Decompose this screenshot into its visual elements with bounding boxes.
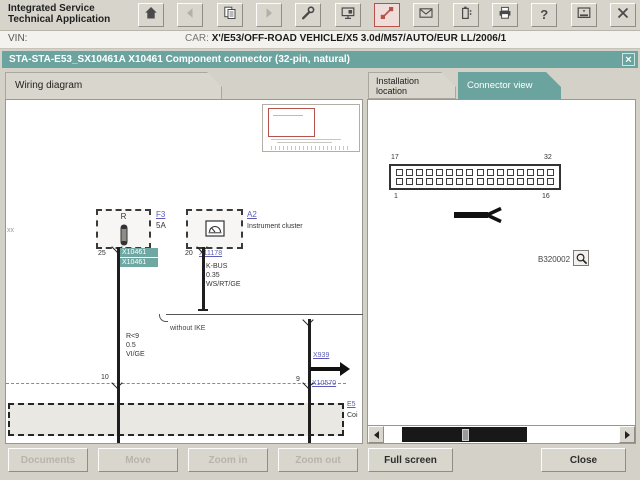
connector-pin xyxy=(406,178,413,185)
connector-pin xyxy=(436,178,443,185)
forward-arrow-icon xyxy=(261,5,277,26)
tab-connector-view[interactable]: Connector view xyxy=(458,72,561,100)
tab-installation-line1: Installation xyxy=(376,76,455,86)
full-screen-button[interactable]: Full screen xyxy=(368,448,453,472)
left-wire-gauge: 0.5 xyxy=(126,341,145,350)
pin-label-top-right: 32 xyxy=(544,153,552,162)
connector-pin xyxy=(517,169,524,176)
left-wire-color: VI/GE xyxy=(126,350,145,359)
magnifier-button[interactable] xyxy=(573,250,589,266)
home-icon xyxy=(143,5,159,26)
fuse-pin-number: 25 xyxy=(98,249,106,258)
connector-pin xyxy=(497,178,504,185)
branch-pin: 9 xyxy=(296,375,300,384)
document-icon xyxy=(222,5,238,26)
app-title-line2: Technical Application xyxy=(8,14,110,25)
car-line: CAR: X'/E53/OFF-ROAD VEHICLE/X5 3.0d/M57… xyxy=(185,33,506,44)
connector-pin xyxy=(547,169,554,176)
branch-arrow-link[interactable]: X939 xyxy=(313,351,329,360)
branch-line xyxy=(166,314,363,315)
connector-pin xyxy=(466,169,473,176)
connector-pin xyxy=(396,169,403,176)
tab-installation-line2: location xyxy=(376,86,455,96)
document-title-bar: STA-STA-E53_SX10461A X10461 Component co… xyxy=(2,51,638,68)
fuse-icon xyxy=(119,223,129,247)
close-button[interactable]: Close xyxy=(541,448,626,472)
wire-end-icon xyxy=(454,205,506,225)
continuation-arrow-head xyxy=(340,362,350,376)
connector-pin xyxy=(517,178,524,185)
branch-line-hook xyxy=(159,314,168,322)
question-icon: ? xyxy=(540,6,548,24)
magnifier-icon xyxy=(575,252,588,265)
wiring-diagram-panel: xx R F3 5A 25 X10461 X10461 A2 xyxy=(5,99,363,444)
tab-connector-view-label: Connector view xyxy=(467,80,532,91)
document-button[interactable] xyxy=(217,3,243,27)
wrench-button[interactable] xyxy=(295,3,321,27)
back-arrow-icon xyxy=(182,5,198,26)
left-wire-name: R<9 xyxy=(126,332,145,341)
left-wire-spec: R<9 0.5 VI/GE xyxy=(126,332,145,359)
tab-installation-location[interactable]: Installation location xyxy=(368,72,456,99)
cluster-label: Instrument cluster xyxy=(247,222,303,231)
close-icon xyxy=(615,5,631,26)
right-triangle-icon xyxy=(625,431,630,439)
plug-icon xyxy=(379,5,395,26)
zoom-in-button[interactable]: Zoom in xyxy=(188,448,268,472)
printer-icon xyxy=(497,5,513,26)
monitor-icon xyxy=(340,5,356,26)
battery-button[interactable] xyxy=(453,3,479,27)
connector-pin xyxy=(446,178,453,185)
pin-label-bottom-right: 16 xyxy=(542,192,550,201)
thumbnail-viewport-rect[interactable] xyxy=(268,108,315,137)
connector-pin-grid xyxy=(389,164,561,190)
connector-pin-row xyxy=(391,169,559,176)
envelope-button[interactable] xyxy=(413,3,439,27)
connector-pin xyxy=(446,169,453,176)
junction-chevron xyxy=(302,314,313,325)
wrench-icon xyxy=(300,5,316,26)
connector-view-panel: 17 32 1 16 B320002 xyxy=(367,99,636,444)
thumbnail-ticks xyxy=(271,146,349,150)
scroll-right-button[interactable] xyxy=(619,426,635,443)
screen-icon xyxy=(576,5,592,26)
clipped-edge-label: xx xyxy=(7,226,14,235)
cluster-pin-number: 20 xyxy=(185,249,193,258)
dotted-separator xyxy=(6,383,346,384)
thumbnail-line xyxy=(271,139,341,140)
horizontal-scrollbar xyxy=(368,425,635,443)
connector-pin xyxy=(466,178,473,185)
thumbnail-line xyxy=(273,115,303,116)
connector-pin xyxy=(477,178,484,185)
connector-pin xyxy=(426,169,433,176)
branch-condition-label: without IKE xyxy=(170,324,205,333)
connector-pin xyxy=(396,178,403,185)
connector-tag[interactable]: X10461 xyxy=(120,258,158,267)
junction-chevron xyxy=(111,377,122,388)
tab-wiring-diagram-label: Wiring diagram xyxy=(15,80,82,91)
connector-pin xyxy=(537,178,544,185)
bus-wire-gauge: 0.35 xyxy=(206,271,240,280)
fuse-rating: 5A xyxy=(156,221,166,231)
fuse-terminal-label: R xyxy=(98,212,149,222)
connector-pin xyxy=(426,178,433,185)
scrollbar-thumb[interactable] xyxy=(402,427,527,442)
envelope-icon xyxy=(418,5,434,26)
connector-pin xyxy=(547,178,554,185)
home-button[interactable] xyxy=(138,3,164,27)
connector-pin xyxy=(487,178,494,185)
documents-button[interactable]: Documents xyxy=(8,448,88,472)
connector-pin xyxy=(477,169,484,176)
scrollbar-track[interactable] xyxy=(384,426,619,443)
thumbnail-line xyxy=(277,142,332,143)
scroll-left-button[interactable] xyxy=(368,426,384,443)
toolbar-icon-row: ? xyxy=(138,3,636,27)
battery-icon xyxy=(458,5,474,26)
scrollbar-grip xyxy=(462,429,469,441)
bus-wire-spec: K-BUS 0.35 WS/RT/GE xyxy=(206,262,240,289)
connector-pin xyxy=(537,169,544,176)
fuse-component-box: R xyxy=(96,209,151,249)
tab-wiring-diagram[interactable]: Wiring diagram xyxy=(5,72,222,99)
top-toolbar: Integrated Service Technical Application… xyxy=(0,0,640,31)
bottom-box-link[interactable]: E5 xyxy=(347,400,356,409)
close-icon: × xyxy=(625,54,631,66)
car-label: CAR: xyxy=(185,33,209,44)
cluster-link[interactable]: A2 xyxy=(247,210,257,220)
instrument-cluster-icon xyxy=(205,220,225,238)
left-triangle-icon xyxy=(374,431,379,439)
left-wire xyxy=(117,247,120,443)
connector-pin xyxy=(436,169,443,176)
diagram-overview-thumbnail[interactable] xyxy=(262,104,360,152)
back-arrow-button[interactable] xyxy=(177,3,203,27)
app-title: Integrated Service Technical Application xyxy=(8,3,110,25)
question-button[interactable]: ? xyxy=(531,3,557,27)
fuse-link[interactable]: F3 xyxy=(156,210,165,220)
connector-pin xyxy=(497,169,504,176)
app-title-line1: Integrated Service xyxy=(8,3,110,14)
left-wire-pin: 10 xyxy=(101,373,109,382)
ista-window: Integrated Service Technical Application… xyxy=(0,0,640,480)
vin-label: VIN: xyxy=(8,33,27,44)
printer-button[interactable] xyxy=(492,3,518,27)
connector-pin xyxy=(406,169,413,176)
connector-pin xyxy=(487,169,494,176)
connector-pin xyxy=(527,169,534,176)
pin-label-top-left: 17 xyxy=(391,153,399,162)
document-title: STA-STA-E53_SX10461A X10461 Component co… xyxy=(9,54,350,65)
bus-wire xyxy=(202,247,205,310)
connector-pin xyxy=(507,169,514,176)
pin-label-bottom-left: 1 xyxy=(394,192,398,201)
plug-button[interactable] xyxy=(374,3,400,27)
branch-connector-link[interactable]: X10570 xyxy=(312,379,336,388)
connector-pin xyxy=(416,178,423,185)
figure-id: B320002 xyxy=(538,255,570,265)
bus-wire-color: WS/RT/GE xyxy=(206,280,240,289)
close-button[interactable] xyxy=(610,3,636,27)
connector-pin xyxy=(527,178,534,185)
bus-wire-end-cap xyxy=(198,309,208,311)
cluster-component-box xyxy=(186,209,243,249)
connector-pin-row xyxy=(391,178,559,185)
connector-pin xyxy=(456,178,463,185)
screen-button[interactable] xyxy=(571,3,597,27)
forward-arrow-button[interactable] xyxy=(256,3,282,27)
connector-pin xyxy=(416,169,423,176)
highlighted-connector-tags: X10461 X10461 xyxy=(120,248,158,268)
bottom-box-label: Coi xyxy=(347,411,358,420)
bottom-module-box xyxy=(8,403,344,436)
bus-wire-name: K-BUS xyxy=(206,262,240,271)
car-value: X'/E53/OFF-ROAD VEHICLE/X5 3.0d/M57/AUTO… xyxy=(212,33,507,44)
continuation-arrow xyxy=(310,367,340,371)
monitor-button[interactable] xyxy=(335,3,361,27)
move-button[interactable]: Move xyxy=(98,448,178,472)
vehicle-bar: VIN: CAR: X'/E53/OFF-ROAD VEHICLE/X5 3.0… xyxy=(0,31,640,49)
connector-pin xyxy=(456,169,463,176)
connector-pin xyxy=(507,178,514,185)
document-close-button[interactable]: × xyxy=(622,53,635,66)
connector-tag[interactable]: X10461 xyxy=(120,248,158,257)
zoom-out-button[interactable]: Zoom out xyxy=(278,448,358,472)
